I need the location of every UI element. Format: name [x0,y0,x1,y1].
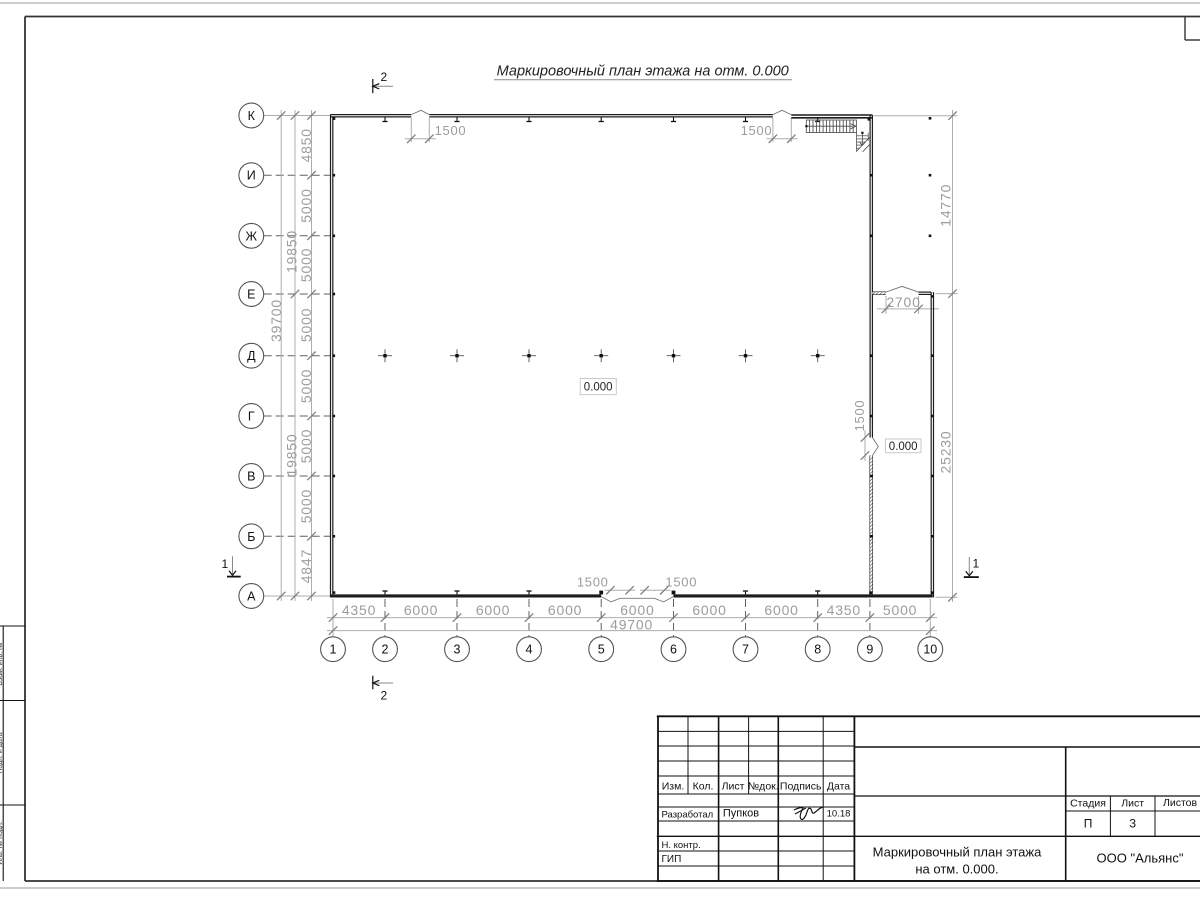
svg-text:6000: 6000 [620,602,654,618]
svg-text:1500: 1500 [665,574,697,589]
svg-text:1500: 1500 [435,123,467,138]
svg-text:39700: 39700 [268,299,284,342]
svg-text:Дата: Дата [827,781,850,793]
svg-text:Разработал: Разработал [662,810,714,821]
svg-text:6000: 6000 [404,602,438,618]
svg-text:Лист: Лист [722,781,745,793]
svg-text:25230: 25230 [938,431,954,474]
svg-text:3: 3 [1129,817,1136,831]
svg-text:4350: 4350 [342,602,376,618]
svg-text:ГИП: ГИП [662,854,682,865]
svg-text:Маркировочный план этажа на от: Маркировочный план этажа на отм. 0.000 [497,64,789,80]
svg-text:10: 10 [923,643,937,657]
svg-text:2: 2 [380,70,387,84]
svg-text:Б: Б [247,530,255,544]
svg-text:П: П [1084,817,1093,831]
svg-text:Г: Г [248,410,255,424]
svg-text:5000: 5000 [298,188,314,222]
svg-text:4: 4 [526,643,533,657]
svg-text:5000: 5000 [298,489,314,523]
svg-text:5000: 5000 [298,248,314,282]
svg-text:19850: 19850 [284,230,300,273]
svg-text:10.18: 10.18 [827,809,851,820]
svg-text:И: И [247,169,256,183]
svg-text:1: 1 [972,557,979,571]
svg-text:1: 1 [221,557,228,571]
svg-text:на отм. 0.000.: на отм. 0.000. [915,862,998,877]
svg-text:Лист: Лист [1121,797,1144,809]
svg-text:К: К [248,109,256,123]
svg-text:14770: 14770 [938,184,954,227]
svg-text:19850: 19850 [284,434,300,477]
svg-text:1500: 1500 [577,574,609,589]
svg-text:Е: Е [247,288,255,302]
svg-text:Кол.: Кол. [693,781,714,793]
svg-text:5000: 5000 [298,429,314,463]
svg-text:2700: 2700 [886,294,920,310]
svg-text:1500: 1500 [741,123,773,138]
svg-text:Пупков: Пупков [723,808,759,820]
svg-text:В: В [247,470,255,484]
svg-text:0.000: 0.000 [584,382,613,394]
svg-text:Взам. инв. №: Взам. инв. № [0,642,4,685]
svg-text:А: А [247,590,256,604]
svg-text:Стадия: Стадия [1070,797,1106,809]
svg-text:0.000: 0.000 [889,441,918,453]
svg-text:Листов: Листов [1163,797,1198,809]
svg-text:9: 9 [866,643,873,657]
svg-text:4350: 4350 [827,602,861,618]
svg-text:6000: 6000 [476,602,510,618]
svg-text:6000: 6000 [764,602,798,618]
svg-text:1500: 1500 [852,400,867,432]
svg-text:6000: 6000 [548,602,582,618]
svg-text:Подпись: Подпись [780,781,822,793]
svg-text:7: 7 [742,643,749,657]
svg-text:5000: 5000 [298,369,314,403]
svg-text:5000: 5000 [298,308,314,342]
svg-text:5000: 5000 [883,602,917,618]
svg-text:Ж: Ж [246,229,258,243]
svg-text:2: 2 [380,689,387,703]
svg-text:49700: 49700 [610,616,653,632]
svg-text:№док.: №док. [748,781,779,793]
svg-text:6: 6 [670,643,677,657]
svg-text:8: 8 [814,643,821,657]
svg-text:ООО "Альянс": ООО "Альянс" [1097,851,1184,866]
svg-text:Н. контр.: Н. контр. [662,840,701,851]
svg-text:2: 2 [382,643,389,657]
svg-text:6000: 6000 [692,602,726,618]
svg-text:Д: Д [247,349,256,363]
svg-text:Изм.: Изм. [662,781,685,793]
svg-text:4847: 4847 [298,549,314,583]
svg-text:Подп. и дата: Подп. и дата [0,732,4,773]
svg-text:4850: 4850 [298,128,314,162]
svg-text:5: 5 [598,643,605,657]
svg-text:Маркировочный план этажа: Маркировочный план этажа [873,845,1042,860]
svg-text:3: 3 [454,643,461,657]
svg-text:Инв. № подл.: Инв. № подл. [0,821,4,865]
svg-text:1: 1 [330,643,337,657]
